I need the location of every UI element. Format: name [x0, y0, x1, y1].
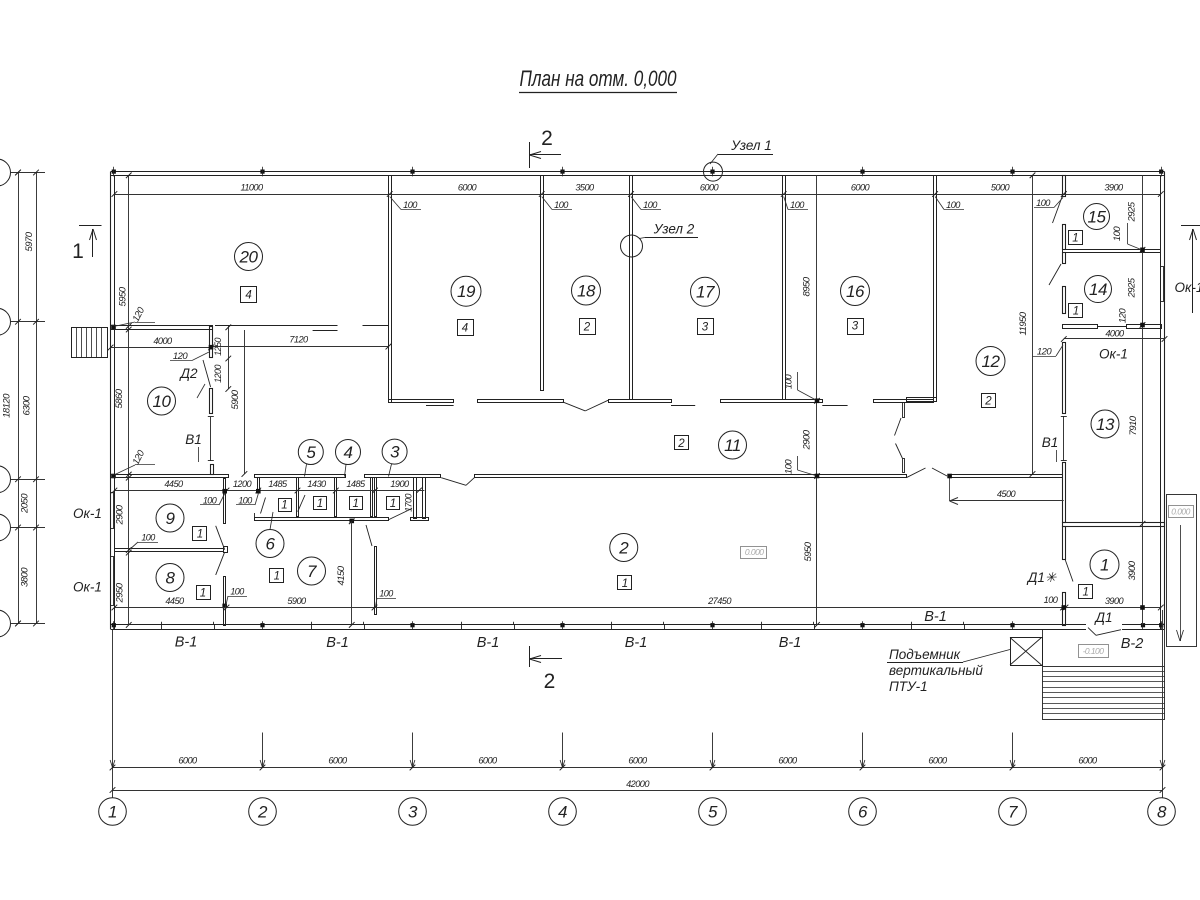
svg-text:1485: 1485 [268, 479, 288, 489]
svg-text:0.000: 0.000 [745, 547, 764, 557]
svg-text:2: 2 [583, 321, 591, 333]
svg-text:4500: 4500 [997, 489, 1017, 499]
svg-text:5000: 5000 [991, 183, 1011, 193]
svg-text:Узел 2: Узел 2 [653, 222, 695, 237]
svg-text:6: 6 [266, 534, 276, 553]
svg-text:1: 1 [317, 498, 323, 510]
svg-text:100: 100 [379, 589, 393, 599]
svg-text:100: 100 [1044, 595, 1059, 605]
svg-text:100: 100 [403, 200, 418, 210]
svg-text:42000: 42000 [626, 779, 650, 789]
svg-text:8950: 8950 [802, 276, 813, 296]
svg-text:11000: 11000 [240, 183, 264, 193]
svg-text:2: 2 [677, 438, 685, 450]
svg-text:13: 13 [1096, 415, 1115, 434]
svg-text:2950: 2950 [115, 582, 126, 603]
svg-text:5860: 5860 [114, 388, 125, 408]
svg-text:16: 16 [846, 282, 865, 301]
svg-text:6: 6 [858, 803, 868, 822]
svg-text:1: 1 [1072, 232, 1078, 244]
svg-text:1: 1 [352, 498, 358, 510]
svg-text:Д1✳: Д1✳ [1026, 570, 1057, 585]
svg-text:5: 5 [708, 803, 718, 822]
svg-text:1250: 1250 [213, 338, 223, 356]
svg-text:4: 4 [462, 322, 468, 334]
svg-text:План на отм. 0,000: План на отм. 0,000 [520, 66, 678, 91]
svg-text:2925: 2925 [1127, 277, 1138, 298]
svg-text:6000: 6000 [928, 756, 948, 766]
svg-text:5950: 5950 [118, 286, 129, 306]
svg-text:6000: 6000 [458, 183, 478, 193]
svg-text:3900: 3900 [1104, 183, 1124, 193]
svg-text:100: 100 [238, 496, 252, 506]
svg-text:4450: 4450 [165, 596, 185, 606]
svg-text:5970: 5970 [24, 231, 35, 251]
svg-text:1200: 1200 [213, 365, 223, 383]
svg-text:100: 100 [554, 200, 569, 210]
svg-text:Подъемник: Подъемник [889, 647, 961, 662]
svg-text:В-1: В-1 [779, 635, 802, 651]
svg-text:Д2: Д2 [178, 366, 198, 381]
svg-text:11950: 11950 [1018, 311, 1029, 335]
svg-text:100: 100 [946, 200, 961, 210]
svg-text:1: 1 [72, 240, 84, 263]
svg-text:100: 100 [643, 200, 658, 210]
svg-text:19: 19 [457, 282, 476, 301]
svg-text:2925: 2925 [1127, 201, 1138, 222]
svg-text:100: 100 [790, 200, 805, 210]
svg-text:В1: В1 [1042, 435, 1059, 450]
svg-text:14: 14 [1089, 280, 1107, 299]
svg-text:1485: 1485 [346, 479, 366, 489]
svg-text:1: 1 [108, 803, 117, 822]
svg-text:3: 3 [408, 803, 418, 822]
svg-text:1900: 1900 [390, 479, 410, 489]
svg-text:0.000: 0.000 [1171, 507, 1190, 517]
svg-text:120: 120 [1037, 347, 1052, 358]
svg-text:В-1: В-1 [625, 635, 648, 651]
svg-text:2: 2 [984, 395, 992, 407]
svg-text:100: 100 [1112, 226, 1123, 241]
svg-text:4: 4 [245, 289, 251, 301]
svg-text:7910: 7910 [1128, 415, 1139, 435]
svg-text:4150: 4150 [336, 565, 347, 585]
svg-text:7: 7 [1008, 803, 1018, 822]
svg-text:18120: 18120 [2, 393, 13, 418]
svg-text:Ок-1: Ок-1 [1175, 280, 1200, 295]
svg-text:2900: 2900 [802, 429, 813, 450]
svg-text:5900: 5900 [230, 389, 241, 409]
svg-text:3900: 3900 [1105, 596, 1125, 606]
svg-text:100: 100 [141, 533, 155, 543]
svg-text:В-2: В-2 [1121, 636, 1144, 652]
svg-text:1: 1 [274, 570, 280, 582]
svg-text:1700: 1700 [404, 494, 414, 512]
svg-text:7: 7 [307, 562, 317, 581]
svg-text:12: 12 [982, 352, 1001, 371]
svg-text:4000: 4000 [1105, 329, 1125, 339]
svg-text:9: 9 [166, 509, 176, 528]
svg-text:Д1: Д1 [1093, 610, 1112, 625]
svg-text:В1: В1 [185, 432, 202, 447]
svg-text:4450: 4450 [164, 479, 184, 489]
svg-text:2: 2 [541, 127, 553, 150]
svg-text:1: 1 [1083, 586, 1089, 598]
svg-text:1: 1 [390, 498, 396, 510]
svg-text:6000: 6000 [478, 756, 498, 766]
svg-text:Ок-1: Ок-1 [1099, 347, 1128, 362]
svg-text:3: 3 [390, 442, 400, 461]
svg-text:1: 1 [622, 578, 628, 590]
svg-text:6000: 6000 [178, 756, 198, 766]
svg-text:7120: 7120 [289, 335, 309, 345]
svg-text:3: 3 [852, 321, 859, 333]
svg-text:2900: 2900 [115, 504, 126, 525]
svg-text:2: 2 [618, 538, 629, 557]
svg-text:3800: 3800 [20, 567, 31, 587]
svg-text:120: 120 [1118, 308, 1129, 323]
svg-text:100: 100 [784, 374, 795, 389]
svg-text:-0.100: -0.100 [1083, 646, 1105, 656]
svg-text:1200: 1200 [233, 479, 253, 489]
svg-text:15: 15 [1088, 207, 1107, 226]
svg-text:В-1: В-1 [175, 635, 198, 651]
svg-text:11: 11 [724, 436, 741, 455]
svg-text:3500: 3500 [575, 183, 595, 193]
svg-text:В-1: В-1 [924, 609, 947, 625]
svg-text:В-1: В-1 [477, 635, 500, 651]
svg-text:6000: 6000 [700, 183, 720, 193]
svg-text:100: 100 [203, 496, 217, 506]
svg-text:5: 5 [306, 443, 316, 462]
svg-text:8: 8 [1157, 803, 1167, 822]
svg-text:1: 1 [197, 528, 203, 540]
svg-text:27450: 27450 [707, 596, 732, 606]
svg-text:Ок-1: Ок-1 [73, 506, 102, 521]
svg-text:1: 1 [1073, 305, 1079, 317]
svg-text:4000: 4000 [153, 336, 173, 346]
svg-text:2050: 2050 [20, 493, 31, 514]
svg-text:10: 10 [153, 392, 172, 411]
svg-text:В-1: В-1 [326, 635, 349, 651]
svg-text:3900: 3900 [1127, 560, 1138, 580]
svg-text:6000: 6000 [328, 756, 348, 766]
svg-text:2: 2 [544, 670, 556, 693]
svg-text:Ок-1: Ок-1 [73, 580, 102, 595]
svg-text:100: 100 [230, 587, 244, 597]
svg-text:ПТУ-1: ПТУ-1 [889, 679, 928, 694]
svg-text:18: 18 [577, 281, 596, 300]
svg-text:5900: 5900 [287, 596, 307, 606]
svg-text:6000: 6000 [778, 756, 798, 766]
svg-text:1430: 1430 [307, 479, 327, 489]
svg-text:100: 100 [784, 459, 795, 474]
svg-text:100: 100 [1036, 198, 1051, 208]
svg-text:3: 3 [702, 321, 709, 333]
svg-text:1: 1 [1100, 555, 1109, 574]
svg-text:6000: 6000 [628, 756, 648, 766]
svg-text:1: 1 [200, 587, 206, 599]
svg-text:6000: 6000 [1078, 756, 1098, 766]
svg-text:2: 2 [257, 803, 268, 822]
svg-text:20: 20 [239, 247, 259, 266]
svg-text:6000: 6000 [851, 183, 871, 193]
svg-text:5950: 5950 [803, 541, 814, 561]
svg-text:1: 1 [281, 499, 287, 511]
svg-text:6300: 6300 [22, 395, 33, 415]
svg-text:Узел 1: Узел 1 [730, 138, 772, 153]
svg-text:4: 4 [344, 443, 353, 462]
svg-text:4: 4 [558, 803, 567, 822]
svg-text:вертикальный: вертикальный [889, 663, 983, 678]
svg-text:17: 17 [696, 283, 715, 302]
svg-text:8: 8 [166, 568, 176, 587]
